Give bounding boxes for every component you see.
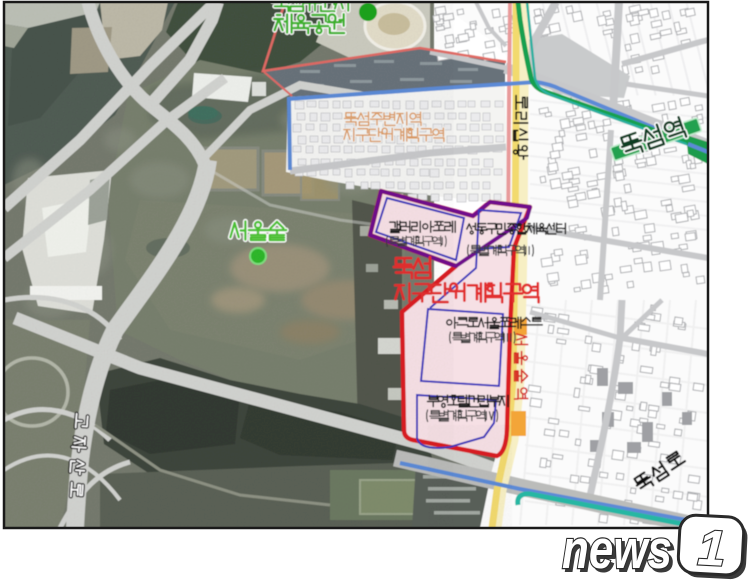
svg-text:1: 1 xyxy=(696,519,727,576)
svg-text:news: news xyxy=(562,518,672,580)
